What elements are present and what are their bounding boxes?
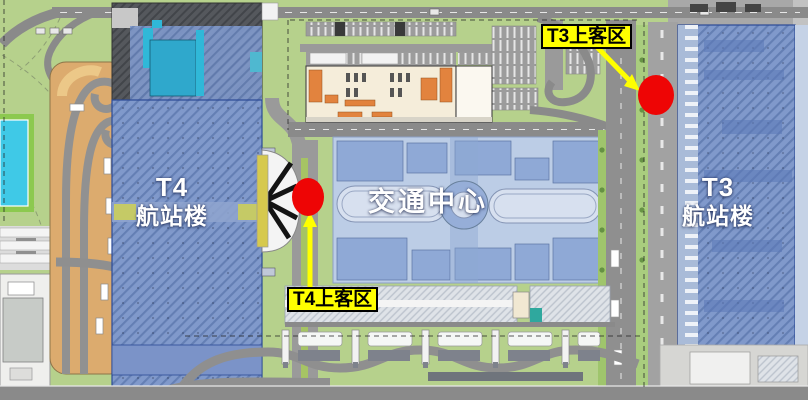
- t4-pickup-marker: [292, 178, 324, 216]
- t4-pickup-tag: T4上客区: [287, 287, 378, 312]
- t3-pickup-tag: T3上客区: [541, 24, 632, 49]
- t4-pickup-arrow-icon: [303, 212, 317, 290]
- annotation-overlay: [0, 0, 808, 400]
- airport-plan-map: T4 航站楼 交通中心 T3 航站楼 T3上客区 T4上客区: [0, 0, 808, 400]
- t3-pickup-marker: [638, 75, 674, 115]
- t3-pickup-arrow-icon: [597, 47, 640, 91]
